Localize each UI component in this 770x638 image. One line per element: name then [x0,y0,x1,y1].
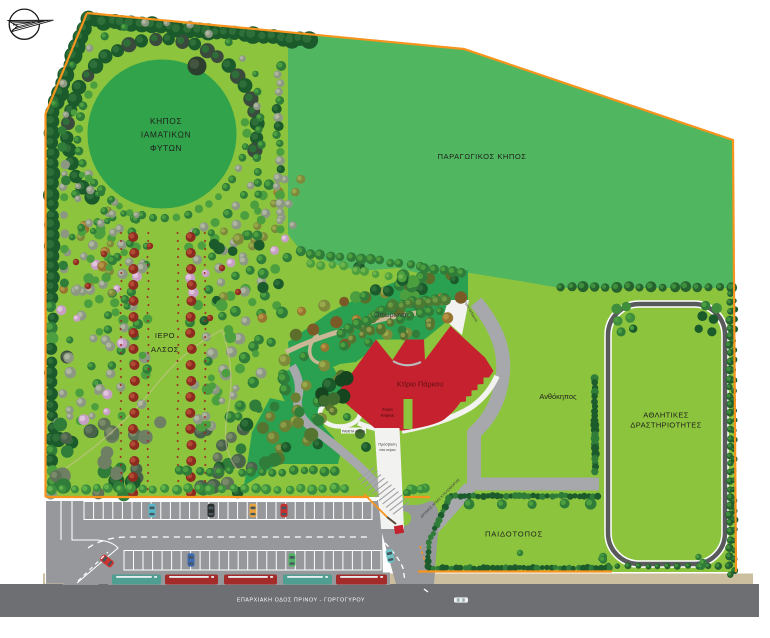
svg-text:ΑΘΛΗΤΙΚΕΣ: ΑΘΛΗΤΙΚΕΣ [643,411,688,420]
svg-text:ΙΑΜΑΤΙΚΩΝ: ΙΑΜΑΤΙΚΩΝ [141,130,191,140]
svg-text:ΠΑΙΔΟΤΟΠΟΣ: ΠΑΙΔΟΤΟΠΟΣ [485,530,543,539]
svg-text:Οπωρώνας: Οπωρώνας [374,311,411,319]
svg-text:ΦΥΤΩΝ: ΦΥΤΩΝ [150,143,182,153]
svg-text:ΔΡΑΣΤΗΡΙΟΤΗΤΕΣ: ΔΡΑΣΤΗΡΙΟΤΗΤΕΣ [630,421,701,430]
svg-text:ΕΠΑΡΧΙΑΚΗ ΟΔΟΣ ΠΡΙΝΟΥ - ΓΟΡΓΟΓ: ΕΠΑΡΧΙΑΚΗ ΟΔΟΣ ΠΡΙΝΟΥ - ΓΟΡΓΟΓΥΡΟΥ [237,598,365,604]
svg-text:ΠΑΡΑΓΩΓΙΚΟΣ ΚΗΠΟΣ: ΠΑΡΑΓΩΓΙΚΟΣ ΚΗΠΟΣ [438,152,527,161]
svg-text:ΚΗΠΟΣ: ΚΗΠΟΣ [150,116,182,126]
svg-text:ΡΑΜΠΑ ΑΜΕΑ: ΡΑΜΠΑ ΑΜΕΑ [342,429,366,433]
svg-text:στο κτίριο: στο κτίριο [379,448,395,452]
svg-text:Κτίριο Πάρκου: Κτίριο Πάρκου [397,380,443,389]
svg-text:Ανθόκηπος: Ανθόκηπος [539,392,577,401]
svg-text:ΙΕΡΟ: ΙΕΡΟ [155,331,175,340]
svg-text:Πρόσβαση: Πρόσβαση [378,443,396,447]
svg-text:λάτρειας: λάτρειας [381,414,395,418]
svg-text:ΑΛΣΟΣ: ΑΛΣΟΣ [151,345,179,354]
svg-text:Χώρος: Χώρος [382,408,393,412]
